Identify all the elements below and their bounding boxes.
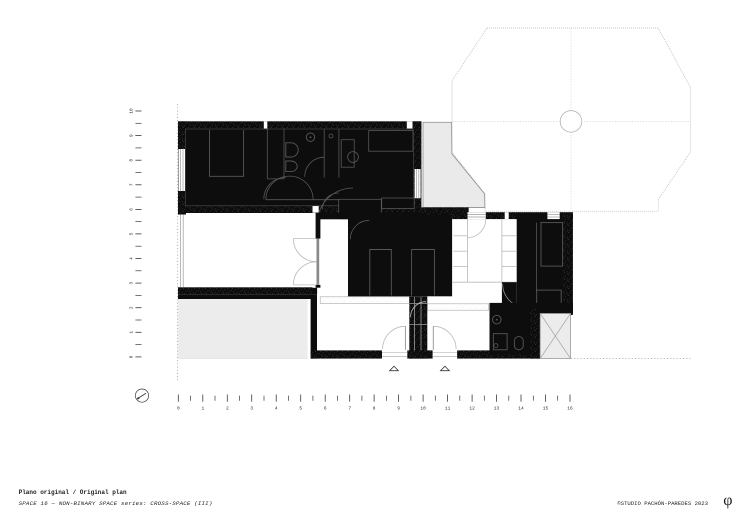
svg-text:9: 9 [397, 405, 400, 411]
svg-text:13: 13 [494, 405, 500, 411]
svg-text:5: 5 [299, 405, 302, 411]
svg-text:9: 9 [129, 134, 135, 137]
svg-text:Plano original / Original plan: Plano original / Original plan [19, 489, 127, 496]
svg-text:4: 4 [275, 405, 278, 411]
svg-text:7: 7 [129, 183, 135, 186]
svg-text:SPACE 16 — NON-BINARY SPACE: SPACE 16 — NON-BINARY SPACE series: CROS… [19, 500, 213, 507]
svg-text:0: 0 [129, 355, 135, 358]
svg-text:8: 8 [129, 159, 135, 162]
svg-text:1: 1 [129, 331, 135, 334]
svg-text:10: 10 [420, 405, 426, 411]
svg-text:8: 8 [373, 405, 376, 411]
svg-text:2: 2 [129, 306, 135, 309]
svg-text:7: 7 [348, 405, 351, 411]
svg-text:16: 16 [567, 405, 573, 411]
svg-text:0: 0 [177, 405, 180, 411]
svg-text:3: 3 [129, 281, 135, 284]
svg-text:6: 6 [324, 405, 327, 411]
svg-text:2: 2 [226, 405, 229, 411]
svg-text:5: 5 [129, 232, 135, 235]
svg-text:4: 4 [129, 257, 135, 260]
svg-text:14: 14 [518, 405, 524, 411]
svg-text:11: 11 [445, 405, 451, 411]
svg-text:φ: φ [723, 492, 732, 509]
svg-text:6: 6 [129, 208, 135, 211]
svg-text:15: 15 [543, 405, 549, 411]
svg-text:1: 1 [201, 405, 204, 411]
svg-text:12: 12 [469, 405, 475, 411]
svg-text:©STUDIO PACHÓN-PAREDES 2023: ©STUDIO PACHÓN-PAREDES 2023 [617, 500, 708, 507]
svg-text:10: 10 [129, 108, 135, 114]
svg-text:3: 3 [250, 405, 253, 411]
